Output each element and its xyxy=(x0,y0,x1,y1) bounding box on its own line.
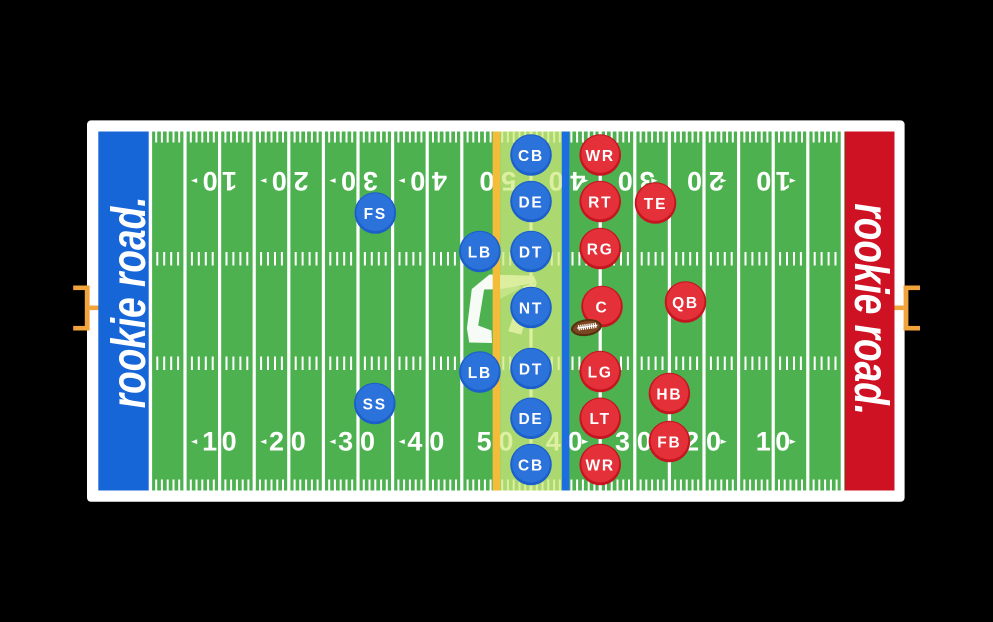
svg-text:FB: FB xyxy=(657,434,681,451)
svg-text:3: 3 xyxy=(615,426,630,456)
svg-text:5: 5 xyxy=(477,426,492,456)
svg-text:C: C xyxy=(596,299,609,316)
svg-text:NT: NT xyxy=(519,300,543,317)
svg-text:1: 1 xyxy=(756,426,771,456)
svg-text:2: 2 xyxy=(294,166,309,196)
svg-text:0: 0 xyxy=(706,426,721,456)
svg-text:4: 4 xyxy=(432,166,447,196)
svg-text:0: 0 xyxy=(360,426,375,456)
svg-text:2: 2 xyxy=(269,426,284,456)
svg-text:0: 0 xyxy=(568,426,583,456)
svg-text:0: 0 xyxy=(222,426,237,456)
svg-text:DE: DE xyxy=(518,411,543,428)
svg-text:0: 0 xyxy=(618,166,633,196)
svg-text:CB: CB xyxy=(518,457,544,474)
svg-text:4: 4 xyxy=(407,426,422,456)
svg-text:rookie road.: rookie road. xyxy=(844,203,898,415)
svg-text:3: 3 xyxy=(363,166,378,196)
svg-text:RT: RT xyxy=(588,194,612,211)
svg-text:SS: SS xyxy=(363,396,387,413)
svg-text:DT: DT xyxy=(519,361,543,378)
svg-text:LG: LG xyxy=(588,364,613,381)
svg-text:RG: RG xyxy=(587,241,614,258)
svg-text:0: 0 xyxy=(341,166,356,196)
svg-text:0: 0 xyxy=(410,166,425,196)
svg-text:WR: WR xyxy=(585,148,614,165)
svg-text:0: 0 xyxy=(429,426,444,456)
svg-text:1: 1 xyxy=(776,166,791,196)
svg-text:CB: CB xyxy=(518,148,544,165)
svg-text:QB: QB xyxy=(672,295,699,312)
svg-text:0: 0 xyxy=(756,166,771,196)
svg-text:HB: HB xyxy=(656,386,682,403)
svg-text:TE: TE xyxy=(644,196,667,213)
svg-text:1: 1 xyxy=(202,426,217,456)
svg-text:0: 0 xyxy=(687,166,702,196)
svg-text:0: 0 xyxy=(203,166,218,196)
svg-text:LB: LB xyxy=(468,365,492,382)
svg-text:FS: FS xyxy=(364,206,387,223)
svg-text:DE: DE xyxy=(518,194,543,211)
svg-text:DT: DT xyxy=(519,244,543,261)
svg-text:0: 0 xyxy=(272,166,287,196)
svg-text:0: 0 xyxy=(775,426,790,456)
svg-text:LB: LB xyxy=(468,244,492,261)
svg-text:LT: LT xyxy=(590,411,611,428)
svg-text:WR: WR xyxy=(585,457,614,474)
svg-text:0: 0 xyxy=(291,426,306,456)
svg-text:0: 0 xyxy=(479,166,494,196)
svg-text:3: 3 xyxy=(338,426,353,456)
svg-text:1: 1 xyxy=(222,166,237,196)
svg-text:rookie road.: rookie road. xyxy=(102,197,156,409)
